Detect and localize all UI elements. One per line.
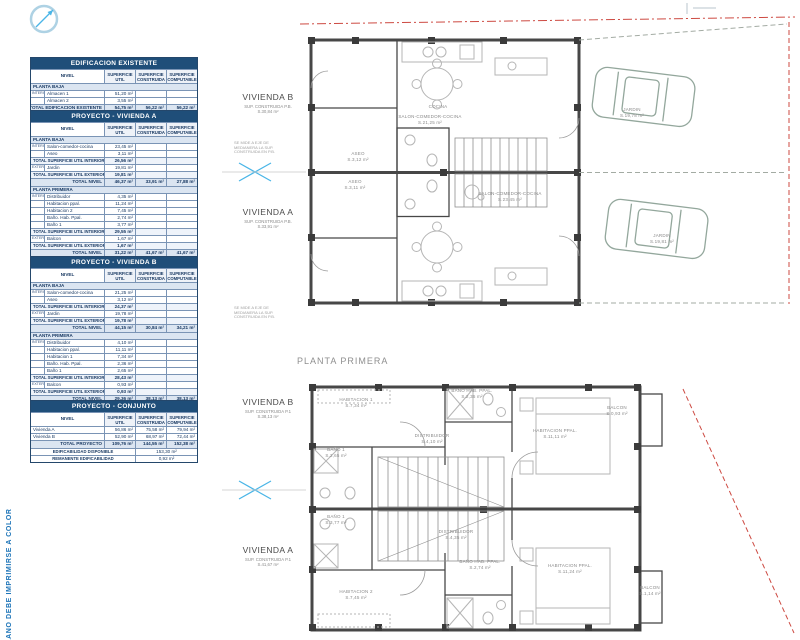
dwelling-name: VIVIENDA A bbox=[232, 545, 304, 555]
cell bbox=[166, 91, 197, 97]
cell bbox=[166, 311, 197, 317]
cell: 4,10 m² bbox=[104, 340, 135, 346]
cell: SUPERFICIEUTIL bbox=[104, 70, 135, 83]
cell: TOTAL SUPERFICIE UTIL EXTERIOR bbox=[31, 318, 104, 324]
cell bbox=[135, 236, 166, 242]
table-row: TOTAL NIVEL44,15 m²30,84 m²34,21 m² bbox=[31, 324, 197, 332]
cell: 33,91 m² bbox=[135, 179, 166, 186]
cell bbox=[166, 215, 197, 221]
table-row: Habitacion 27,45 m² bbox=[31, 207, 197, 214]
cell: Baño. Hab. Ppal. bbox=[44, 361, 104, 367]
table-header-row: NIVELSUPERFICIEUTILSUPERFICIECONSTRUIDAS… bbox=[31, 69, 197, 83]
cell bbox=[31, 201, 44, 207]
cell: 68,97 m² bbox=[135, 434, 166, 440]
table-row: TOTAL PROYECTO109,76 m²144,55 m²152,38 m… bbox=[31, 440, 197, 448]
room-label: SALON-COMEDOR-COCINAS.23,45 m² bbox=[462, 191, 558, 202]
cell: SUPERFICIEUTIL bbox=[104, 413, 135, 426]
table-row: INTERIORDistribuidor4,10 m² bbox=[31, 339, 197, 346]
cell: 3,55 m² bbox=[104, 98, 135, 104]
table-proyecto-vivienda-a: PROYECTO - VIVIENDA ANIVELSUPERFICIEUTIL… bbox=[30, 110, 198, 267]
cell: Vivienda A bbox=[31, 427, 104, 433]
cell bbox=[166, 194, 197, 200]
print-color-note: PLANO DEBE IMPRIMIRSE A COLOR bbox=[6, 508, 13, 640]
cell bbox=[166, 172, 197, 178]
dwelling-label: VIVIENDA ASUP. CONSTRUIDA P.1S.41,67 m² bbox=[232, 545, 304, 567]
cell bbox=[135, 91, 166, 97]
cell bbox=[166, 144, 197, 150]
cell bbox=[166, 347, 197, 353]
cell: EXTERIOR bbox=[31, 236, 44, 242]
table-row: INTERIORSalon-comedor-cocina23,45 m² bbox=[31, 143, 197, 150]
cell: 19,78 m² bbox=[104, 318, 135, 324]
cell: Baño 1 bbox=[44, 222, 104, 228]
table-row: EDIFICABILIDAD DISPONIBLE153,30 m² bbox=[31, 448, 197, 455]
table-row: Baño. Hab. Ppal.2,74 m² bbox=[31, 214, 197, 221]
cell: 44,15 m² bbox=[104, 325, 135, 332]
cell: 24,37 m² bbox=[104, 304, 135, 310]
cell bbox=[166, 243, 197, 249]
room-label: HABITACION PPAL.S.11,11 m² bbox=[507, 428, 603, 439]
cell: 34,21 m² bbox=[166, 325, 197, 332]
cell: Habitacion 1 bbox=[44, 354, 104, 360]
cell: 19,81 m² bbox=[104, 165, 135, 171]
cell: REMANENTE EDIFICABILIDAD bbox=[31, 456, 135, 462]
cell: 109,76 m² bbox=[104, 441, 135, 448]
cell bbox=[166, 297, 197, 303]
cell: SUPERFICIECOMPUTABLE bbox=[166, 269, 197, 282]
table-row: TOTAL SUPERFICIE UTIL EXTERIOR19,81 m² bbox=[31, 171, 197, 178]
cell: 7,45 m² bbox=[104, 208, 135, 214]
room-label: ASEOS.3,12 m² bbox=[310, 151, 406, 162]
cell: Baño. Hab. Ppal. bbox=[44, 215, 104, 221]
cell: Distribuidor bbox=[44, 340, 104, 346]
cell bbox=[135, 194, 166, 200]
room-label: HABITACION 1S.7,34 m² bbox=[308, 397, 404, 408]
cell: 29,55 m² bbox=[104, 229, 135, 235]
cell: TOTAL SUPERFICIE UTIL EXTERIOR bbox=[31, 389, 104, 395]
cell: 52,90 m² bbox=[104, 434, 135, 440]
cell: 2,36 m² bbox=[104, 361, 135, 367]
cell bbox=[135, 229, 166, 235]
cell: 2,65 m² bbox=[104, 368, 135, 374]
cell: Habitacion ppal. bbox=[44, 201, 104, 207]
table-header-row: NIVELSUPERFICIEUTILSUPERFICIECONSTRUIDAS… bbox=[31, 412, 197, 426]
cell bbox=[31, 347, 44, 353]
cell: 7,34 m² bbox=[104, 354, 135, 360]
cell bbox=[135, 158, 166, 164]
table-row: INTERIORAlmacen 151,20 m² bbox=[31, 90, 197, 97]
table-row: Habitacion ppal.11,11 m² bbox=[31, 346, 197, 353]
cell: 1,67 m² bbox=[104, 243, 135, 249]
cell bbox=[166, 389, 197, 395]
cell bbox=[166, 368, 197, 374]
cell bbox=[166, 229, 197, 235]
table-proyecto-vivienda-b: PROYECTO - VIVIENDA BNIVELSUPERFICIEUTIL… bbox=[30, 256, 198, 413]
cell: TOTAL SUPERFICIE UTIL INTERIOR bbox=[31, 375, 104, 381]
cell bbox=[166, 165, 197, 171]
cell: 27,88 m² bbox=[166, 179, 197, 186]
cell: NIVEL bbox=[31, 70, 104, 83]
table-row: TOTAL SUPERFICIE UTIL EXTERIOR0,93 m² bbox=[31, 388, 197, 395]
cell: INTERIOR bbox=[31, 144, 44, 150]
car-icon bbox=[591, 66, 709, 260]
cell: 75,58 m² bbox=[135, 427, 166, 433]
table-row: TOTAL SUPERFICIE UTIL EXTERIOR19,78 m² bbox=[31, 317, 197, 324]
cell: SUPERFICIECONSTRUIDA bbox=[135, 123, 166, 136]
cell bbox=[135, 311, 166, 317]
cell bbox=[135, 222, 166, 228]
room-label: BAÑO 1S.2,65 m² bbox=[288, 447, 384, 458]
table-row: EXTERIORBalcon1,67 m² bbox=[31, 235, 197, 242]
cell: 152,38 m² bbox=[166, 441, 197, 448]
room-label: COCINA bbox=[390, 104, 486, 110]
cell bbox=[135, 208, 166, 214]
table-row: Baño 12,65 m² bbox=[31, 367, 197, 374]
table-row: PLANTA PRIMERA bbox=[31, 332, 197, 339]
cell bbox=[135, 172, 166, 178]
cell: 21,25 m² bbox=[104, 290, 135, 296]
cell bbox=[166, 236, 197, 242]
cell: 51,20 m² bbox=[104, 91, 135, 97]
cell: Balcon bbox=[44, 236, 104, 242]
cell: TOTAL SUPERFICIE UTIL INTERIOR bbox=[31, 304, 104, 310]
table-title: EDIFICACION EXISTENTE bbox=[31, 58, 197, 69]
cell: PLANTA BAJA bbox=[31, 137, 197, 143]
cell: EXTERIOR bbox=[31, 382, 44, 388]
cell: Aseo bbox=[44, 297, 104, 303]
cell: Vivienda B bbox=[31, 434, 104, 440]
cell bbox=[135, 165, 166, 171]
cell bbox=[31, 208, 44, 214]
cell: Distribuidor bbox=[44, 194, 104, 200]
cell: Jardin bbox=[44, 311, 104, 317]
cell: NIVEL bbox=[31, 123, 104, 136]
cell: 28,43 m² bbox=[104, 375, 135, 381]
cell: 0,92 m² bbox=[135, 456, 197, 462]
table-title: PROYECTO - VIVIENDA A bbox=[31, 111, 197, 122]
cell: 144,55 m² bbox=[135, 441, 166, 448]
dwelling-name: VIVIENDA A bbox=[232, 207, 304, 217]
cell: 153,30 m² bbox=[135, 449, 197, 455]
cell bbox=[31, 297, 44, 303]
cell bbox=[31, 354, 44, 360]
room-label: ASEOS.3,11 m² bbox=[307, 179, 403, 190]
cell bbox=[31, 361, 44, 367]
cell: 11,24 m² bbox=[104, 201, 135, 207]
area-tables-column: EDIFICACION EXISTENTENIVELSUPERFICIEUTIL… bbox=[0, 0, 230, 640]
dwelling-label: VIVIENDA BSUP. CONSTRUIDA P.B.S.30,84 m² bbox=[232, 92, 304, 114]
cell: 2,74 m² bbox=[104, 215, 135, 221]
cell: EDIFICABILIDAD DISPONIBLE bbox=[31, 449, 135, 455]
cell bbox=[166, 201, 197, 207]
cell bbox=[135, 347, 166, 353]
table-row: TOTAL SUPERFICIE UTIL EXTERIOR1,67 m² bbox=[31, 242, 197, 249]
cell: Habitacion ppal. bbox=[44, 347, 104, 353]
cell: TOTAL PROYECTO bbox=[31, 441, 104, 448]
cell: 4,35 m² bbox=[104, 194, 135, 200]
table-row: Aseo3,12 m² bbox=[31, 296, 197, 303]
cell bbox=[31, 215, 44, 221]
cell bbox=[31, 151, 44, 157]
table-row: Vivienda B52,90 m²68,97 m²72,44 m² bbox=[31, 433, 197, 440]
cell bbox=[166, 361, 197, 367]
dwelling-label: VIVIENDA ASUP. CONSTRUIDA P.B.S.33,91 m² bbox=[232, 207, 304, 229]
cell: NIVEL bbox=[31, 413, 104, 426]
cell bbox=[166, 290, 197, 296]
cell: PLANTA PRIMERA bbox=[31, 333, 197, 339]
cell: SUPERFICIECONSTRUIDA bbox=[135, 413, 166, 426]
dwelling-area: SUP. CONSTRUIDA P.B.S.33,91 m² bbox=[232, 219, 304, 229]
table-row: TOTAL SUPERFICIE UTIL INTERIOR26,56 m² bbox=[31, 157, 197, 164]
cell bbox=[166, 208, 197, 214]
cell: SUPERFICIECONSTRUIDA bbox=[135, 269, 166, 282]
room-label: DISTRIBUIDORS.4,35 m² bbox=[408, 529, 504, 540]
cell bbox=[135, 354, 166, 360]
cell bbox=[31, 222, 44, 228]
table-row: TOTAL SUPERFICIE UTIL INTERIOR29,55 m² bbox=[31, 228, 197, 235]
cell: 19,81 m² bbox=[104, 172, 135, 178]
room-label: DISTRIBUIDORS.4,10 m² bbox=[384, 433, 480, 444]
cell: 23,45 m² bbox=[104, 144, 135, 150]
table-row: Habitacion 17,34 m² bbox=[31, 353, 197, 360]
cell: EXTERIOR bbox=[31, 165, 44, 171]
cell: PLANTA PRIMERA bbox=[31, 187, 197, 193]
table-title: PROYECTO - VIVIENDA B bbox=[31, 257, 197, 268]
cell: Salon-comedor-cocina bbox=[44, 290, 104, 296]
cell: Aseo bbox=[44, 151, 104, 157]
cell: Baño 1 bbox=[44, 368, 104, 374]
room-label: HABITACION 2S.7,45 m² bbox=[308, 589, 404, 600]
cell: 3,12 m² bbox=[104, 297, 135, 303]
cell bbox=[166, 304, 197, 310]
cell: Almacen 2 bbox=[44, 98, 104, 104]
cell bbox=[135, 151, 166, 157]
cell bbox=[135, 201, 166, 207]
cell: INTERIOR bbox=[31, 340, 44, 346]
room-label: SALON-COMEDOR-COCINAS.21,25 m² bbox=[382, 114, 478, 125]
cell bbox=[166, 222, 197, 228]
cell: 0,93 m² bbox=[104, 389, 135, 395]
room-label: JARDINS.19,78 m² bbox=[584, 107, 680, 118]
cell: SUPERFICIECONSTRUIDA bbox=[135, 70, 166, 83]
table-row: Aseo3,11 m² bbox=[31, 150, 197, 157]
cell: PLANTA BAJA bbox=[31, 84, 197, 90]
dwelling-name: VIVIENDA B bbox=[232, 92, 304, 102]
cell: TOTAL SUPERFICIE UTIL INTERIOR bbox=[31, 229, 104, 235]
cell bbox=[135, 361, 166, 367]
cell: 11,11 m² bbox=[104, 347, 135, 353]
table-row: PLANTA BAJA bbox=[31, 282, 197, 289]
cell bbox=[166, 375, 197, 381]
cell: Jardin bbox=[44, 165, 104, 171]
measurement-note: SE MIDE A EJE DEMEDIANERA LA SUP.CONSTRU… bbox=[234, 141, 275, 155]
dwelling-label: VIVIENDA BSUP. CONSTRUIDA P.1S.38,13 m² bbox=[232, 397, 304, 419]
cell: SUPERFICIEUTIL bbox=[104, 269, 135, 282]
table-header-row: NIVELSUPERFICIEUTILSUPERFICIECONSTRUIDAS… bbox=[31, 122, 197, 136]
cell: TOTAL SUPERFICIE UTIL EXTERIOR bbox=[31, 243, 104, 249]
cell: 19,78 m² bbox=[104, 311, 135, 317]
cell bbox=[135, 98, 166, 104]
cell bbox=[166, 98, 197, 104]
cell bbox=[135, 144, 166, 150]
room-label: HABITACION PPAL.S.11,24 m² bbox=[522, 563, 618, 574]
measurement-note: SE MIDE A EJE DEMEDIANERA LA SUP.CONSTRU… bbox=[234, 306, 275, 320]
cell bbox=[135, 318, 166, 324]
cell: TOTAL SUPERFICIE UTIL EXTERIOR bbox=[31, 172, 104, 178]
cell: Almacen 1 bbox=[44, 91, 104, 97]
table-row: INTERIORDistribuidor4,35 m² bbox=[31, 193, 197, 200]
table-row: TOTAL NIVEL46,37 m²33,91 m²27,88 m² bbox=[31, 178, 197, 186]
cell: INTERIOR bbox=[31, 194, 44, 200]
cell bbox=[166, 340, 197, 346]
cell: 26,56 m² bbox=[104, 158, 135, 164]
table-row: Baño 13,77 m² bbox=[31, 221, 197, 228]
table-row: TOTAL SUPERFICIE UTIL INTERIOR28,43 m² bbox=[31, 374, 197, 381]
table-row: Almacen 23,55 m² bbox=[31, 97, 197, 104]
table-row: Baño. Hab. Ppal.2,36 m² bbox=[31, 360, 197, 367]
cell: SUPERFICIECOMPUTABLE bbox=[166, 123, 197, 136]
cell bbox=[31, 98, 44, 104]
cell: TOTAL SUPERFICIE UTIL INTERIOR bbox=[31, 158, 104, 164]
table-header-row: NIVELSUPERFICIEUTILSUPERFICIECONSTRUIDAS… bbox=[31, 268, 197, 282]
room-label: BALCONS.1,14 m² bbox=[602, 585, 698, 596]
cell: 79,94 m² bbox=[166, 427, 197, 433]
cell bbox=[135, 375, 166, 381]
dwelling-area: SUP. CONSTRUIDA P.B.S.30,84 m² bbox=[232, 104, 304, 114]
cell: 30,84 m² bbox=[135, 325, 166, 332]
cell: 72,44 m² bbox=[166, 434, 197, 440]
cell bbox=[166, 158, 197, 164]
cell: 0,93 m² bbox=[104, 382, 135, 388]
cell: EXTERIOR bbox=[31, 311, 44, 317]
planta-primera-title: PLANTA PRIMERA bbox=[297, 356, 388, 366]
cell: 46,37 m² bbox=[104, 179, 135, 186]
table-row: TOTAL SUPERFICIE UTIL INTERIOR24,37 m² bbox=[31, 303, 197, 310]
cell bbox=[135, 389, 166, 395]
cell: PLANTA BAJA bbox=[31, 283, 197, 289]
cell: TOTAL NIVEL bbox=[31, 325, 104, 332]
table-proyecto-conjunto: PROYECTO - CONJUNTONIVELSUPERFICIEUTILSU… bbox=[30, 400, 198, 463]
table-row: EXTERIORJardin19,78 m² bbox=[31, 310, 197, 317]
cell: TOTAL NIVEL bbox=[31, 179, 104, 186]
cell bbox=[135, 243, 166, 249]
table-title: PROYECTO - CONJUNTO bbox=[31, 401, 197, 412]
table-row: PLANTA BAJA bbox=[31, 83, 197, 90]
room-label: BALCONS.0,93 m² bbox=[569, 405, 665, 416]
cell bbox=[166, 151, 197, 157]
table-edificacion-existente: EDIFICACION EXISTENTENIVELSUPERFICIEUTIL… bbox=[30, 57, 198, 113]
table-row: INTERIORSalon-comedor-cocina21,25 m² bbox=[31, 289, 197, 296]
cell bbox=[135, 290, 166, 296]
table-row: Habitacion ppal.11,24 m² bbox=[31, 200, 197, 207]
cell bbox=[166, 354, 197, 360]
table-row: Vivienda A56,86 m²75,58 m²79,94 m² bbox=[31, 426, 197, 433]
room-label: JARDINS.19,81 m² bbox=[614, 233, 710, 244]
cell bbox=[135, 382, 166, 388]
dwelling-area: SUP. CONSTRUIDA P.1S.38,13 m² bbox=[232, 409, 304, 419]
cell: SUPERFICIEUTIL bbox=[104, 123, 135, 136]
room-label: BAÑO 1S.3,77 m² bbox=[288, 514, 384, 525]
cell bbox=[135, 297, 166, 303]
cell: NIVEL bbox=[31, 269, 104, 282]
cell: 1,67 m² bbox=[104, 236, 135, 242]
cell: Salon-comedor-cocina bbox=[44, 144, 104, 150]
plan-sheet: EDIFICACION EXISTENTENIVELSUPERFICIEUTIL… bbox=[0, 0, 800, 640]
cell: INTERIOR bbox=[31, 91, 44, 97]
cell: SUPERFICIECOMPUTABLE bbox=[166, 413, 197, 426]
cell: Habitacion 2 bbox=[44, 208, 104, 214]
cell: 3,11 m² bbox=[104, 151, 135, 157]
cell bbox=[31, 368, 44, 374]
table-row: EXTERIORJardin19,81 m² bbox=[31, 164, 197, 171]
room-label: BAÑO HAB. PPAL.S.2,74 m² bbox=[432, 559, 528, 570]
table-row: PLANTA PRIMERA bbox=[31, 186, 197, 193]
cell bbox=[135, 340, 166, 346]
cell bbox=[166, 318, 197, 324]
cell bbox=[135, 304, 166, 310]
table-row: REMANENTE EDIFICABILIDAD0,92 m² bbox=[31, 455, 197, 462]
cell: INTERIOR bbox=[31, 290, 44, 296]
room-label: BAÑO HAB. PPAL.S.2,36 m² bbox=[424, 388, 520, 399]
dwelling-name: VIVIENDA B bbox=[232, 397, 304, 407]
dwelling-area: SUP. CONSTRUIDA P.1S.41,67 m² bbox=[232, 557, 304, 567]
cell bbox=[166, 382, 197, 388]
table-row: EXTERIORBalcon0,93 m² bbox=[31, 381, 197, 388]
cell: Balcon bbox=[44, 382, 104, 388]
cell: 3,77 m² bbox=[104, 222, 135, 228]
table-row: PLANTA BAJA bbox=[31, 136, 197, 143]
cell bbox=[135, 368, 166, 374]
cell: SUPERFICIECOMPUTABLE bbox=[166, 70, 197, 83]
cell: 56,86 m² bbox=[104, 427, 135, 433]
cell bbox=[135, 215, 166, 221]
